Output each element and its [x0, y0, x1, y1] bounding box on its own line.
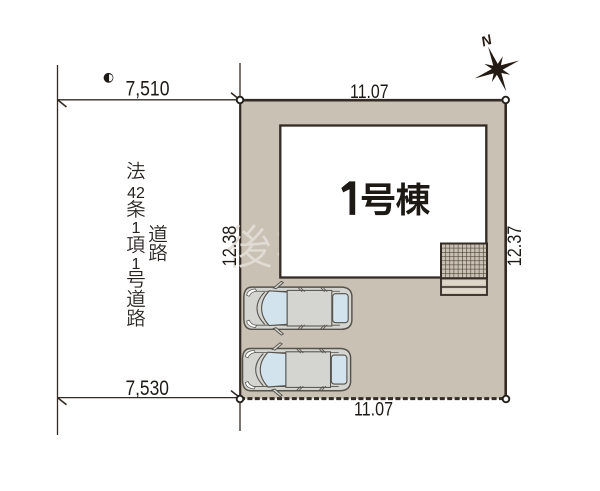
svg-text:12.37: 12.37 [505, 226, 526, 267]
svg-text:11.07: 11.07 [350, 82, 389, 103]
svg-text:1: 1 [132, 220, 141, 237]
svg-text:7,530: 7,530 [125, 377, 169, 400]
svg-text:12.38: 12.38 [220, 226, 241, 267]
svg-text:11.07: 11.07 [354, 399, 393, 420]
svg-text:7,510: 7,510 [126, 78, 170, 101]
svg-text:N: N [479, 31, 495, 50]
svg-text:42: 42 [127, 185, 145, 202]
svg-text:1: 1 [132, 256, 141, 273]
